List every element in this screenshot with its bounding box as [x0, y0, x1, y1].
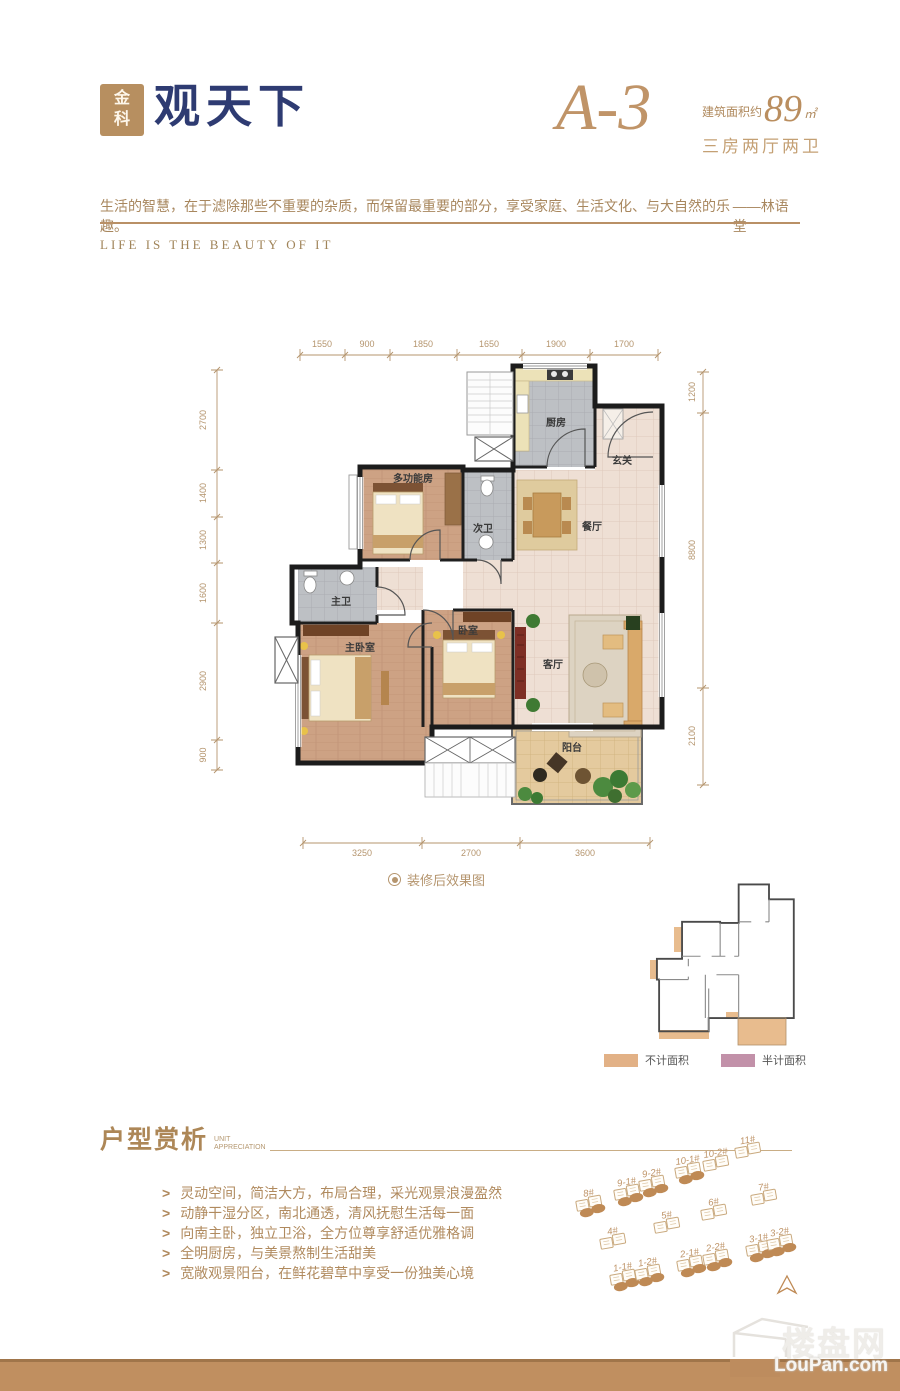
mini-highlights	[650, 927, 786, 1045]
dim-bottom-0: 3250	[352, 848, 372, 858]
legend-not-counted: 不计面积	[604, 1052, 689, 1068]
room-label-foyer: 玄关	[612, 454, 632, 467]
building-10-1: 10-1#	[673, 1153, 706, 1186]
dim-top-3: 1650	[479, 339, 499, 349]
tv-console	[515, 627, 526, 699]
kitchen-sink	[517, 395, 528, 413]
legend: 不计面积 半计面积	[604, 1052, 806, 1068]
dim-bottom-2: 3600	[575, 848, 595, 858]
room-label-balcony: 阳台	[562, 741, 582, 754]
lamp	[433, 631, 441, 639]
plant	[526, 698, 540, 712]
room-label-second-bath: 次卫	[473, 522, 493, 535]
room-label-multi: 多功能房	[393, 472, 433, 485]
brochure-page: 金科 观天下 A-3 建筑面积约 89 ㎡ 三房两厅两卫 生活的智慧，在于滤除那…	[0, 0, 900, 1391]
dim-left-0: 2700	[198, 410, 208, 430]
building-9-1: 9-1#	[612, 1175, 645, 1208]
sink	[479, 535, 493, 549]
svg-text:8#: 8#	[582, 1187, 595, 1200]
divider-line	[100, 222, 800, 224]
dim-right-1: 8800	[687, 540, 697, 560]
unit-code: A-3	[556, 70, 651, 146]
unit-area: 建筑面积约 89 ㎡	[702, 92, 862, 126]
sink	[340, 571, 354, 585]
building-9-2: 9-2#	[637, 1166, 670, 1199]
brand-logo: 金科 观天下	[100, 84, 310, 136]
brand-logo-mark: 金科	[100, 84, 144, 136]
room-label-kitchen: 厨房	[546, 416, 566, 429]
dim-bottom-1: 2700	[461, 848, 481, 858]
room-label-dining: 餐厅	[581, 520, 602, 533]
foyer-closet	[603, 409, 623, 439]
dim-top-0: 1550	[312, 339, 332, 349]
legend-label: 半计面积	[762, 1052, 806, 1068]
point-text: 动静干湿分区，南北通透，清风抚慰生活每一面	[180, 1203, 474, 1223]
dim-left-2: 1300	[198, 530, 208, 550]
building-7: 7#	[749, 1180, 777, 1205]
area-label: 建筑面积约	[702, 103, 762, 126]
rooms-summary: 三房两厅两卫	[702, 132, 862, 157]
toilet	[481, 480, 493, 496]
north-arrow-icon	[778, 1276, 796, 1293]
svg-text:7#: 7#	[757, 1181, 770, 1194]
point-text: 宽敞观景阳台，在鲜花碧草中享受一份独美心境	[180, 1263, 474, 1283]
dining-furniture	[517, 480, 577, 550]
render-caption: 装修后效果图	[388, 870, 485, 889]
stool	[533, 768, 547, 782]
point-text: 灵动空间，简洁大方，布局合理，采光观景浪漫盈然	[180, 1183, 502, 1203]
shelf	[303, 625, 369, 636]
dim-left-5: 900	[198, 747, 208, 762]
legend-swatch-tan	[604, 1054, 638, 1067]
quote-author: ——林语堂	[733, 196, 800, 236]
subtitle-line1: UNIT	[214, 1136, 230, 1143]
dim-left-4: 2900	[198, 671, 208, 691]
plant	[526, 614, 540, 628]
dim-top-4: 1900	[546, 339, 566, 349]
legend-half-counted: 半计面积	[721, 1052, 806, 1068]
house-icon	[730, 1315, 810, 1359]
lamp	[300, 642, 308, 650]
bullseye-icon	[388, 873, 401, 886]
analysis-point: 动静干湿分区，南北通透，清风抚慰生活每一面	[162, 1203, 602, 1223]
area-unit: ㎡	[804, 105, 816, 126]
building-5: 5#	[652, 1208, 680, 1233]
lamp	[497, 631, 505, 639]
quote-row: 生活的智慧，在于滤除那些不重要的杂质，而保留最重要的部分，享受家庭、生活文化、与…	[100, 196, 800, 236]
dim-top-1: 900	[359, 339, 374, 349]
bench	[381, 671, 389, 705]
corner-plant	[626, 616, 640, 630]
building-10-2: 10-2#	[701, 1146, 731, 1171]
dim-top-2: 1850	[413, 339, 433, 349]
analysis-point: 灵动空间，简洁大方，布局合理，采光观景浪漫盈然	[162, 1183, 602, 1203]
site-plan: 8# 9-1# 9-2# 10-1# 10-2# 11# 7# 6# 5# 4#…	[560, 1128, 820, 1308]
floorplan: 厨房 玄关 餐厅 多功能房 次卫 主卫 主卧室 卧室 客厅 阳台	[195, 335, 725, 880]
armchair	[603, 703, 623, 717]
dining-table	[533, 493, 561, 537]
analysis-points: 灵动空间，简洁大方，布局合理，采光观景浪漫盈然 动静干湿分区，南北通透，清风抚慰…	[162, 1183, 602, 1283]
slogan: LIFE IS THE BEAUTY OF IT	[100, 237, 333, 253]
legend-label: 不计面积	[645, 1052, 689, 1068]
building-4: 4#	[598, 1224, 626, 1249]
building-2-1: 2-1#	[675, 1246, 708, 1279]
building-8: 8#	[574, 1186, 607, 1219]
wardrobe	[445, 473, 461, 525]
armchair	[603, 635, 623, 649]
mini-floorplan	[598, 866, 798, 1056]
room-label-master-bedroom: 主卧室	[345, 641, 375, 654]
area-value: 89	[764, 92, 802, 126]
brand-logo-name: 观天下	[154, 84, 310, 130]
point-text: 全明厨房，与美景熬制生活甜美	[180, 1243, 376, 1263]
render-caption-text: 装修后效果图	[407, 870, 485, 889]
section-subtitle: UNIT APPRECIATION	[214, 1136, 266, 1157]
analysis-point: 宽敞观景阳台，在鲜花碧草中享受一份独美心境	[162, 1263, 602, 1283]
coffee-table	[583, 663, 607, 687]
building-11: 11#	[733, 1133, 761, 1158]
dim-top-5: 1700	[614, 339, 634, 349]
svg-text:4#: 4#	[606, 1225, 619, 1238]
shelf	[463, 612, 511, 622]
dim-left-1: 1400	[198, 483, 208, 503]
dim-right-2: 2100	[687, 726, 697, 746]
legend-swatch-mauve	[721, 1054, 755, 1067]
dim-left-3: 1600	[198, 583, 208, 603]
svg-text:5#: 5#	[660, 1209, 673, 1222]
room-label-bedroom: 卧室	[458, 624, 478, 637]
analysis-point: 全明厨房，与美景熬制生活甜美	[162, 1243, 602, 1263]
toilet	[304, 577, 316, 593]
quote-text: 生活的智慧，在于滤除那些不重要的杂质，而保留最重要的部分，享受家庭、生活文化、与…	[100, 196, 733, 236]
subtitle-line2: APPRECIATION	[214, 1144, 266, 1151]
section-title: 户型赏析	[100, 1120, 208, 1156]
analysis-point: 向南主卧，独立卫浴，全方位尊享舒适优雅格调	[162, 1223, 602, 1243]
room-label-living: 客厅	[542, 658, 563, 671]
logo-mark-text: 金科	[113, 89, 131, 131]
unit-info: 建筑面积约 89 ㎡ 三房两厅两卫	[702, 92, 862, 157]
room-label-master-bath: 主卫	[331, 595, 351, 608]
footer-bar	[0, 1359, 900, 1391]
svg-text:6#: 6#	[707, 1196, 720, 1209]
dim-right-0: 1200	[687, 382, 697, 402]
point-text: 向南主卧，独立卫浴，全方位尊享舒适优雅格调	[180, 1223, 474, 1243]
watermark-cn: 楼盘网	[782, 1317, 887, 1365]
building-6: 6#	[699, 1195, 727, 1220]
stove	[547, 368, 573, 380]
stool	[575, 768, 591, 784]
sofa	[628, 629, 642, 721]
